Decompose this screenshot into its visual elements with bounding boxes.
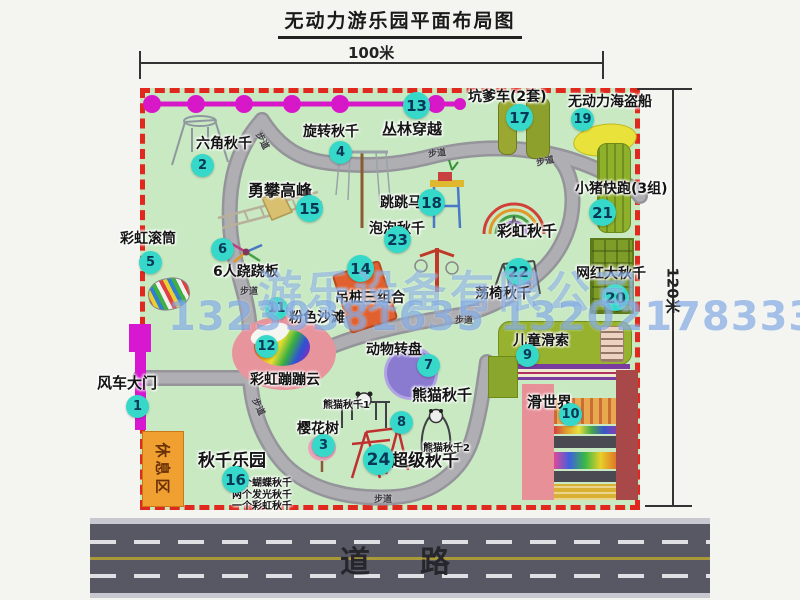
dim-height-tick-bottom: [645, 505, 692, 507]
attraction-22-label: 荡椅秋千: [475, 283, 531, 303]
road: 道 路: [90, 518, 710, 598]
slide-world-band-yellow: [554, 484, 616, 500]
attraction-16-badge: 16: [222, 466, 249, 493]
page-title: 无动力游乐园平面布局图: [278, 6, 521, 39]
attraction-10-badge: 10: [559, 403, 582, 426]
dim-height-label: 120米: [663, 261, 684, 321]
attraction-7-badge: 7: [417, 354, 440, 377]
dim-width-label: 100米: [348, 42, 394, 63]
walkway-label: 步道: [374, 492, 392, 505]
road-label: 道 路: [90, 524, 710, 593]
attraction-17-label: 坑爹车(2套): [468, 86, 547, 106]
attraction-21-label: 小猪快跑(3组): [575, 178, 668, 198]
attraction-21-badge: 21: [589, 199, 616, 226]
walkway-label: 步道: [240, 284, 258, 297]
attraction-4-label: 旋转秋千: [303, 121, 359, 141]
attraction-2-label: 六角秋千: [196, 133, 252, 153]
attraction-15-badge: 15: [296, 195, 323, 222]
attraction-24-badge: 24: [363, 444, 394, 475]
attraction-1-label: 风车大门: [97, 372, 157, 393]
attraction-2-badge: 2: [191, 154, 214, 177]
attraction-13-badge: 13: [403, 92, 430, 119]
kids-zipline-tower-icon: [600, 326, 624, 362]
attraction-5-badge: 5: [139, 251, 162, 274]
attraction-11-label: 粉色沙滩: [289, 307, 345, 327]
attraction-22-badge: 22: [505, 258, 532, 285]
zipline-platform-icon: [488, 356, 518, 398]
attraction-13-label: 丛林穿越: [382, 118, 442, 139]
attraction-12-label: 彩虹蹦蹦云: [250, 369, 320, 389]
slide-world-right-strip: [616, 370, 638, 500]
attraction-8-badge: 8: [390, 411, 413, 434]
attraction-18-badge: 18: [418, 189, 445, 216]
attraction-9-badge: 9: [516, 344, 539, 367]
attraction-20-badge: 20: [602, 284, 629, 311]
title-wrap: 无动力游乐园平面布局图: [0, 6, 800, 39]
panda-swing-2-label: 熊猫秋千2: [423, 439, 470, 454]
dim-width-tick-left: [139, 51, 141, 79]
swing-park-detail-3: 一个彩虹秋千: [232, 497, 292, 512]
walkway-label: 步道: [455, 313, 473, 326]
attraction-20-label: 网红大秋千: [576, 263, 646, 283]
attraction-6-badge: 6: [211, 238, 234, 261]
rainbow-swing-label: 彩虹秋千: [497, 220, 557, 241]
walkway-label: 步道: [427, 145, 446, 160]
rest-area-box: 休息区: [142, 431, 184, 507]
attraction-3-badge: 3: [312, 434, 335, 457]
attraction-7-label: 动物转盘: [366, 339, 422, 359]
attraction-17-badge: 17: [506, 104, 533, 131]
attraction-12-badge: 12: [255, 335, 278, 358]
windmill-gate-icon: [129, 324, 151, 352]
attraction-5-label: 彩虹滚筒: [120, 228, 176, 248]
rest-area-label: 休息区: [153, 442, 174, 496]
attraction-19-badge: 19: [571, 108, 594, 131]
attraction-11-badge: 11: [265, 297, 288, 320]
dim-width-tick-right: [602, 51, 604, 79]
attraction-23-badge: 23: [384, 226, 411, 253]
attraction-18-label: 跳跳马: [380, 192, 422, 212]
attraction-8-label: 熊猫秋千: [412, 384, 472, 405]
attraction-1-badge: 1: [126, 395, 149, 418]
panda-swing-1-label: 熊猫秋千1: [323, 396, 370, 411]
dim-height-tick-top: [637, 88, 692, 90]
attraction-6-label: 6人跷跷板: [213, 261, 279, 281]
attraction-4-badge: 4: [329, 141, 352, 164]
attraction-14-label: 吊桩三组合: [335, 287, 405, 307]
slide-world-band-dark1: [554, 436, 616, 448]
attraction-14-badge: 14: [347, 255, 374, 282]
pit-car-pad-icon: [526, 97, 550, 159]
slide-world-band-rainbow1: [554, 426, 616, 434]
slide-world-band-rainbow2: [554, 452, 616, 469]
slide-world-band-dark2: [554, 471, 616, 482]
park-layout-map: 无动力游乐园平面布局图 100米 120米: [0, 0, 800, 600]
